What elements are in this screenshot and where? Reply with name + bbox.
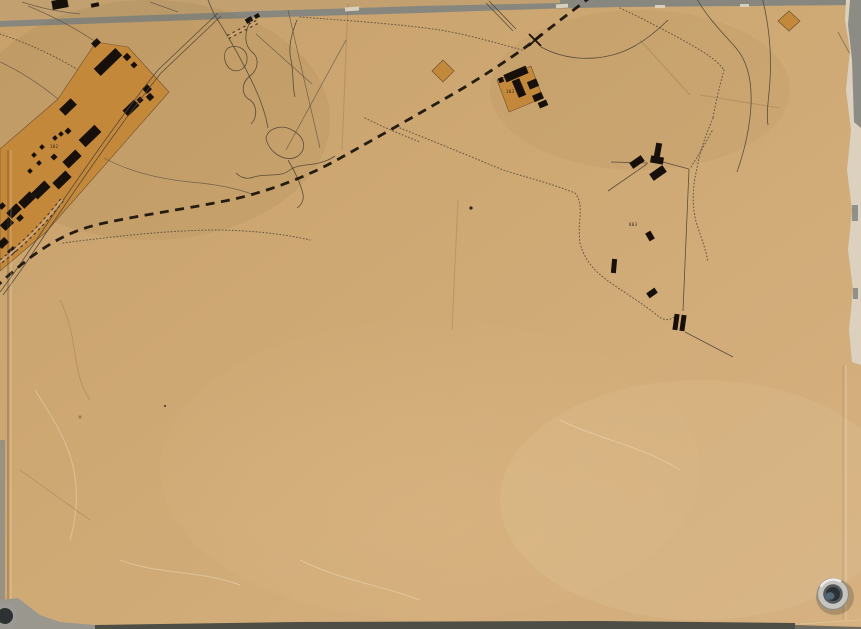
map-sheet: 102	[0, 0, 861, 629]
map-canvas: 102	[0, 0, 861, 629]
compound-label: 102	[50, 144, 59, 149]
depot-label: 103	[506, 89, 515, 94]
map-photo: 102	[0, 0, 861, 629]
enclosure-label: 803	[629, 222, 638, 227]
